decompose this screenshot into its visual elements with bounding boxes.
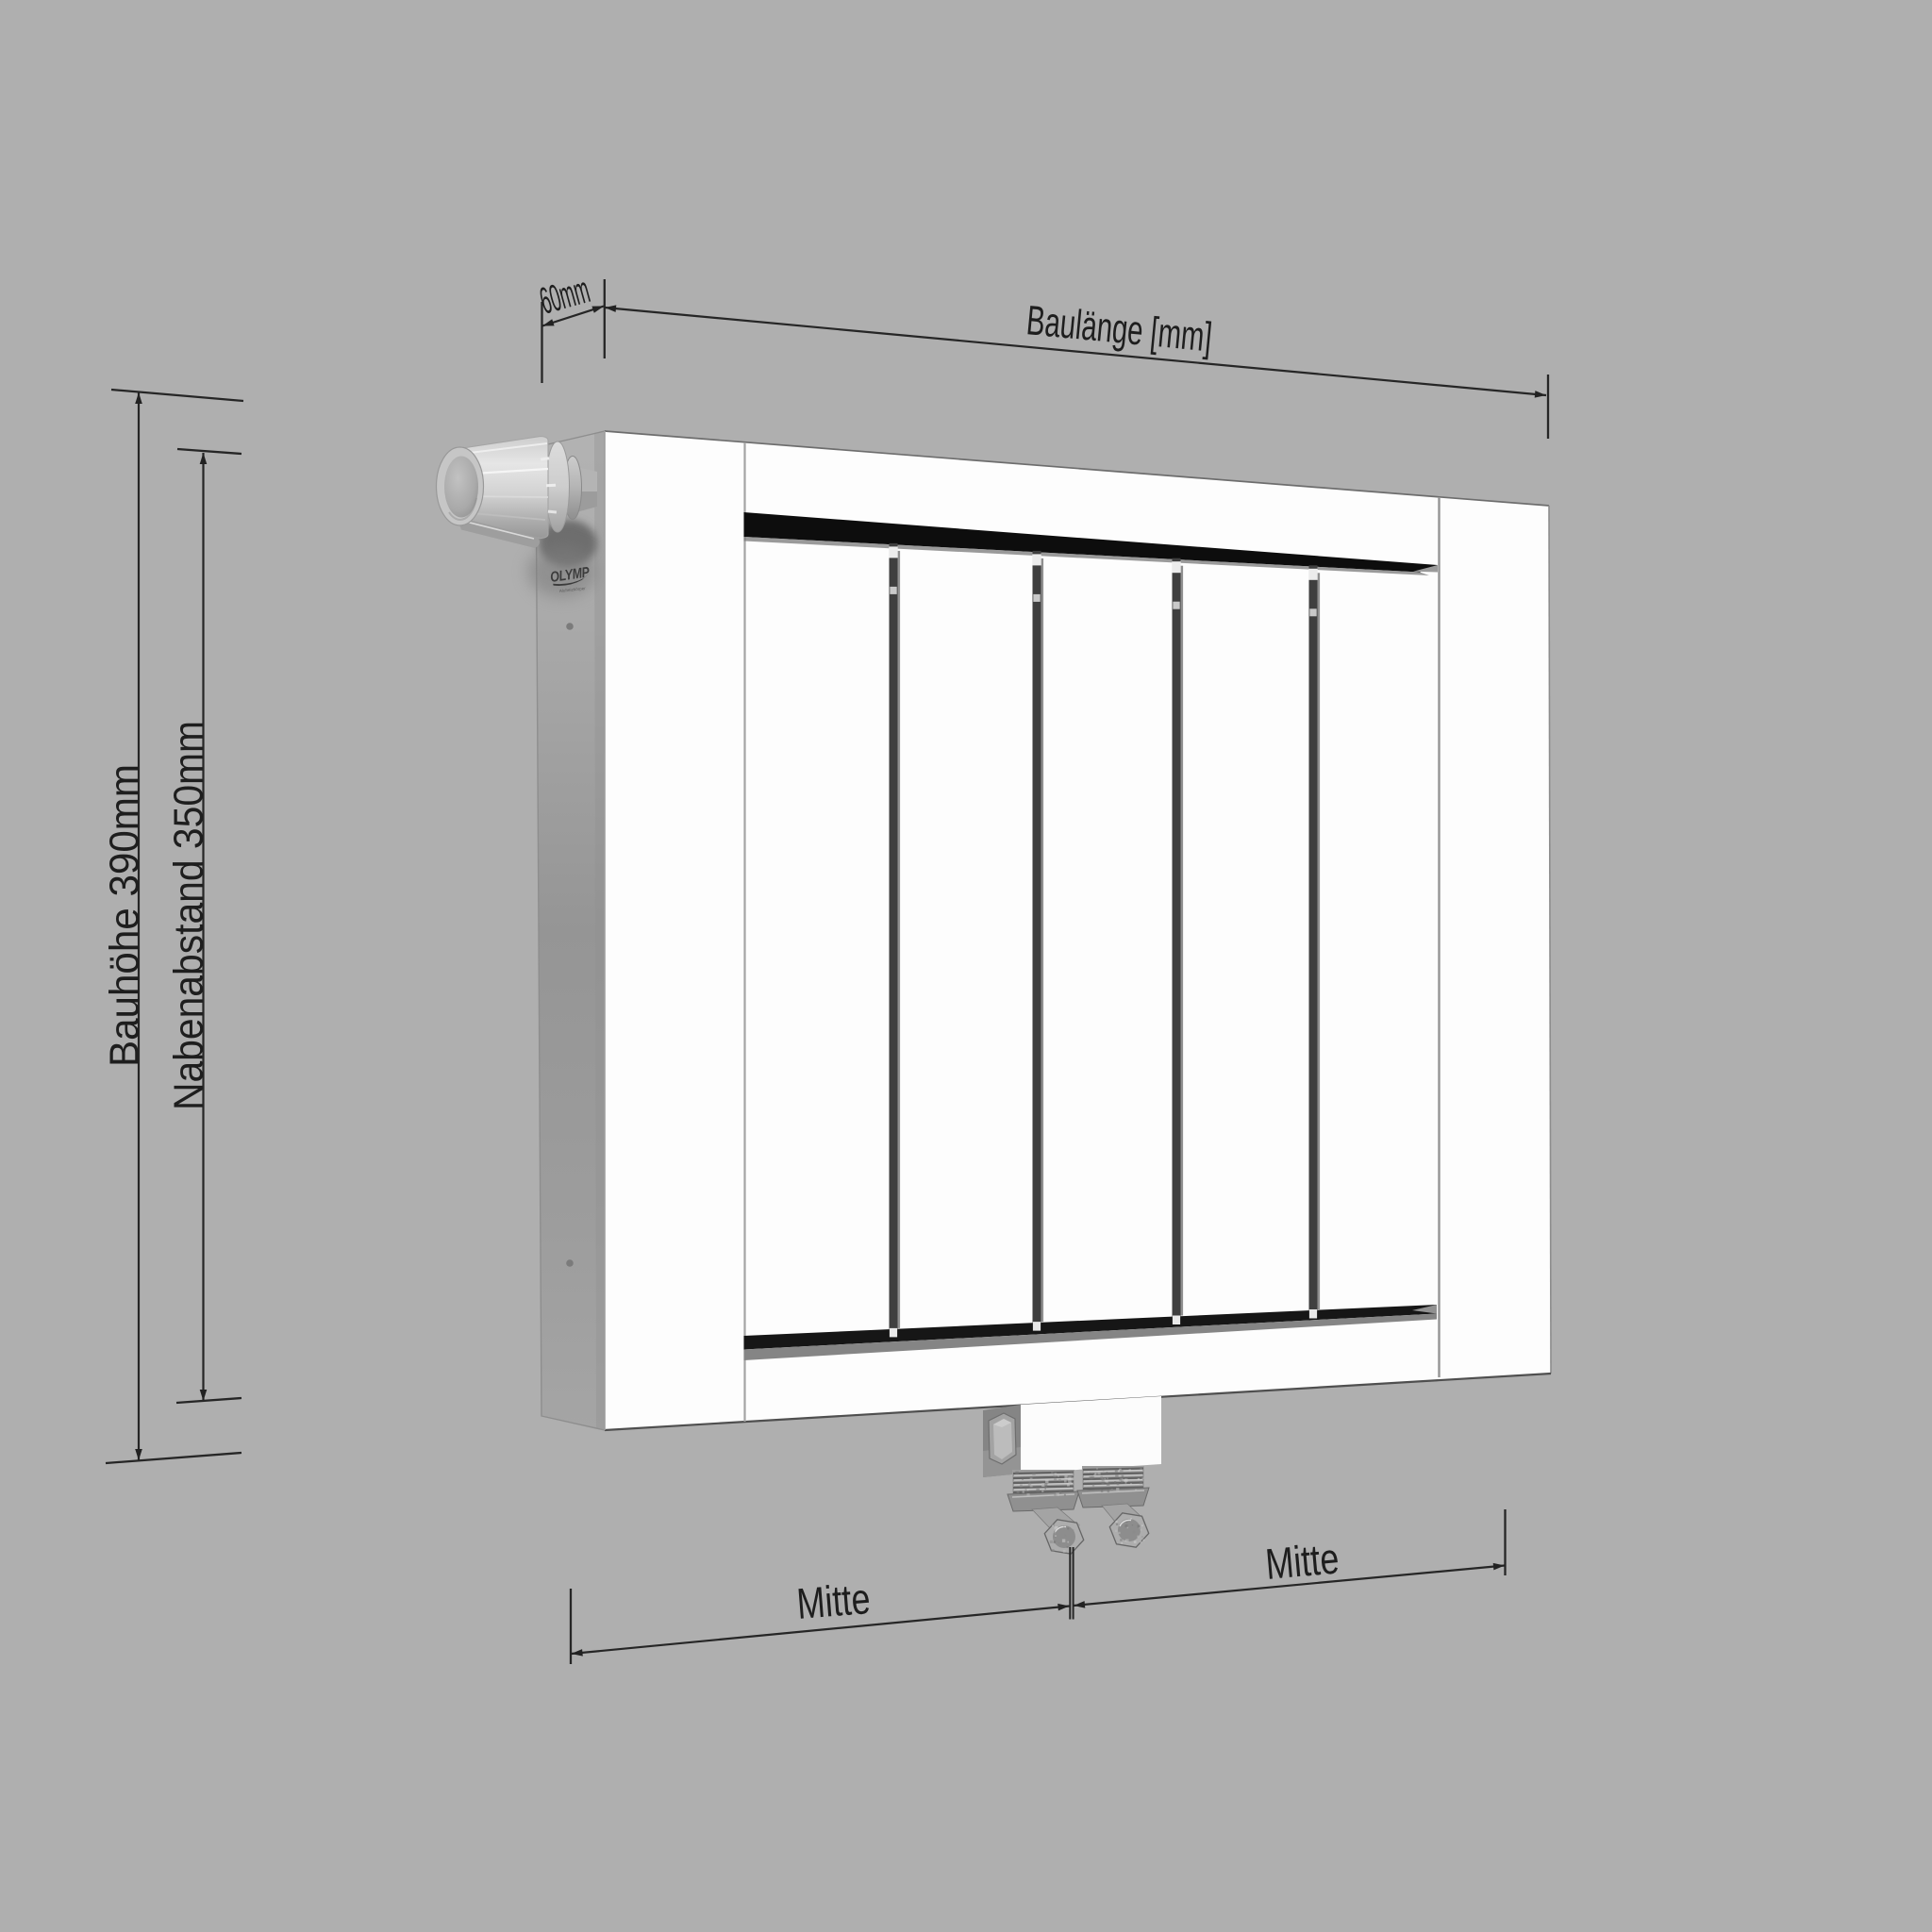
svg-text:Nabenabstand 350mm: Nabenabstand 350mm — [165, 721, 211, 1110]
svg-text:Bauhöhe 390mm: Bauhöhe 390mm — [102, 764, 148, 1067]
svg-text:Mitte: Mitte — [1263, 1534, 1341, 1589]
svg-text:Mitte: Mitte — [795, 1574, 873, 1628]
